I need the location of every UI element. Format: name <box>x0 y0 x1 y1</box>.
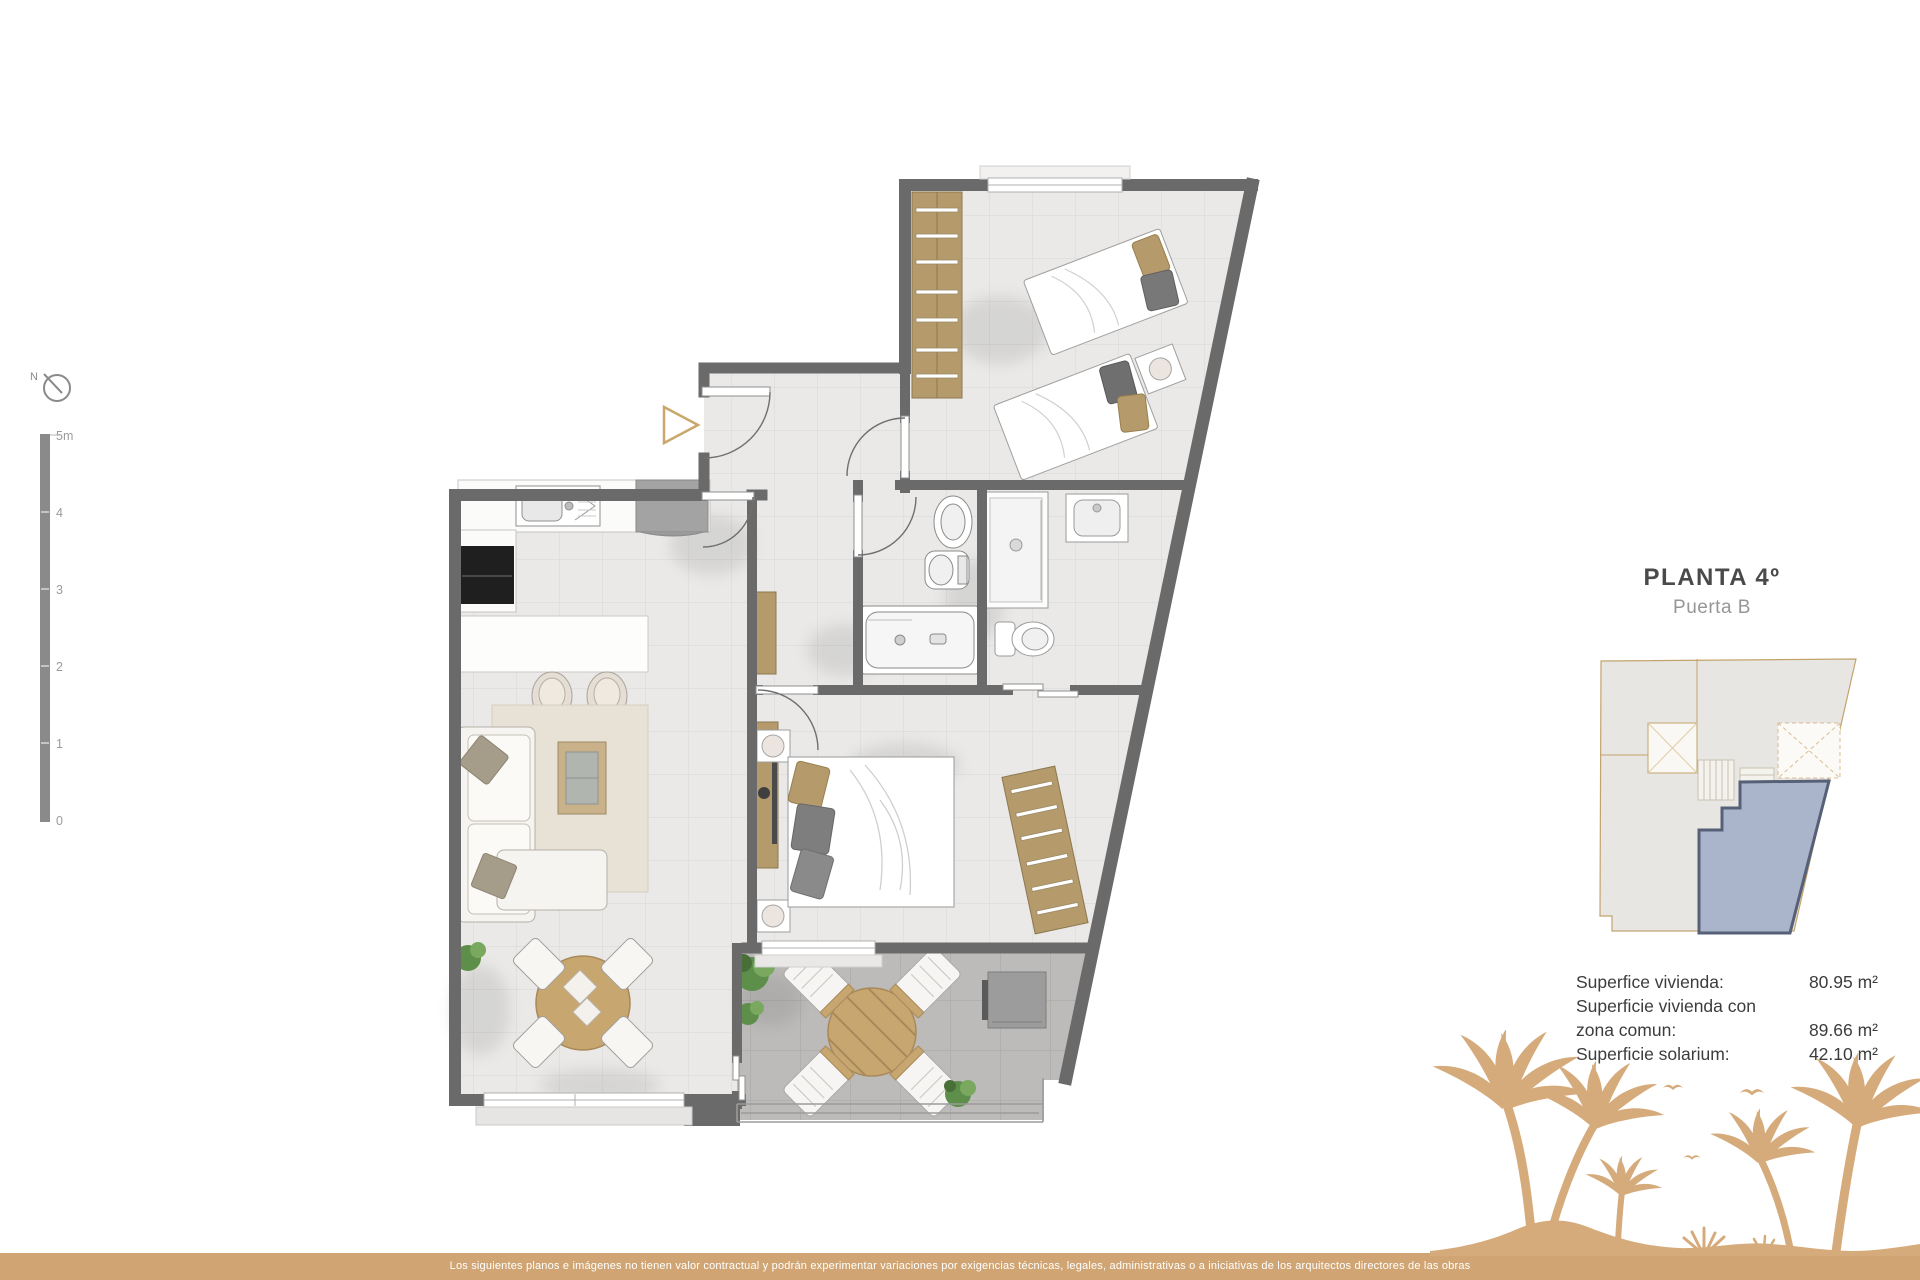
north-label: N <box>30 371 38 383</box>
scale-bar: 5m 4 3 2 1 0 <box>40 429 73 828</box>
page-title: PLANTA 4º <box>1572 564 1852 592</box>
bird-icon <box>1663 1085 1683 1090</box>
cooktop <box>460 546 514 604</box>
palm-beach-graphic <box>1430 1030 1920 1256</box>
kitchen-appliance <box>636 480 708 532</box>
bird-icon <box>1740 1089 1764 1095</box>
area-row: Superficie vivienda con <box>1576 994 1878 1018</box>
scale-label: 2 <box>56 660 63 674</box>
terrace-cabinet <box>988 972 1046 1028</box>
scale-label: 1 <box>56 737 63 751</box>
lightwell <box>1778 723 1840 778</box>
entrance-arrow-icon <box>664 407 698 443</box>
wardrobe <box>912 192 962 398</box>
toilet <box>995 622 1054 656</box>
kitchen-island <box>456 616 648 672</box>
disclaimer-text: Los siguientes planos e imágenes no tien… <box>0 1253 1920 1280</box>
hall-sideboard <box>756 592 776 674</box>
north-compass-icon: N <box>30 371 70 401</box>
footer-bar: Los siguientes planos e imágenes no tien… <box>0 1253 1920 1280</box>
compass-and-scale: N 5m 4 3 2 1 0 <box>18 355 118 840</box>
bird-icon <box>1684 1155 1701 1159</box>
area-row: Superfice vivienda: 80.95 m² <box>1576 970 1878 994</box>
palm-tree <box>1583 1155 1662 1242</box>
scale-label: 0 <box>56 814 63 828</box>
plan-title-block: PLANTA 4º Puerta B <box>1572 564 1852 619</box>
page-subtitle: Puerta B <box>1572 597 1852 619</box>
lightwell <box>1648 723 1697 773</box>
double-bed <box>787 757 954 907</box>
palm-tree <box>1430 1030 1588 1242</box>
palm-silhouette <box>1430 1030 1920 1256</box>
scale-label: 3 <box>56 583 63 597</box>
palm-tree <box>1707 1108 1815 1248</box>
coffee-table <box>558 742 606 814</box>
key-plan <box>1588 648 1883 948</box>
floor-plan <box>430 140 1270 1150</box>
scale-label: 4 <box>56 506 63 520</box>
scale-label: 5m <box>56 429 73 443</box>
